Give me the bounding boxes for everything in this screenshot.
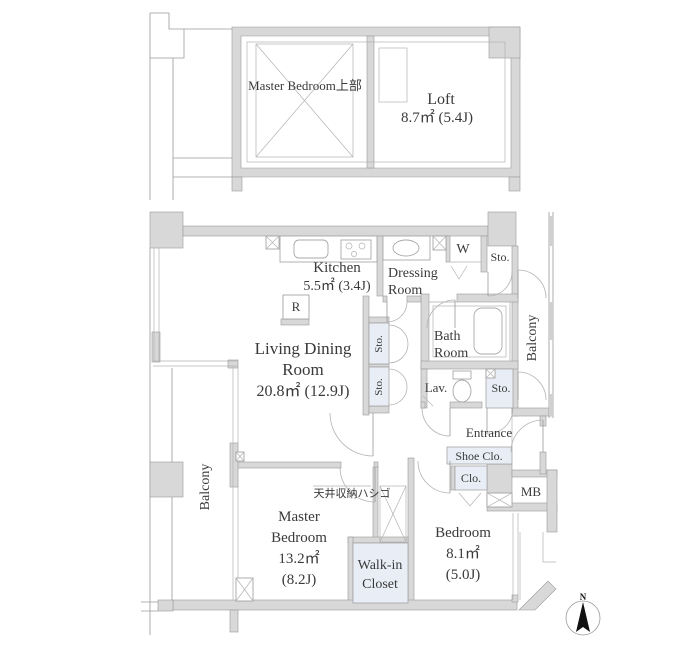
storage-label-2: Sto. (373, 378, 385, 396)
kitchen-sink (294, 240, 328, 258)
walk-in-closet (353, 543, 408, 603)
toilet (453, 380, 471, 402)
bedroom-area-label-1: 8.1㎡ (446, 545, 480, 562)
dressing-room-label-2: Room (388, 283, 422, 298)
bath-room-label-1: Bath (434, 329, 460, 344)
balcony-label-left: Balcony (198, 464, 213, 511)
bath-room-label-2: Room (434, 346, 468, 361)
wic-label-1: Walk-in (358, 558, 403, 573)
loft-label: Loft (427, 91, 455, 108)
master-area-label-1: 13.2㎡ (278, 550, 319, 567)
toilet-tank (453, 371, 471, 379)
wic-label-2: Closet (362, 577, 398, 592)
pipe-shaft-kitchen (266, 236, 279, 249)
washer-label: W (456, 242, 470, 257)
floor-plan-page: Master Bedroom上部 Loft 8.7㎡ (5.4J) (0, 0, 700, 650)
entrance-label: Entrance (466, 425, 512, 440)
pillar-master (236, 578, 253, 601)
closet-door-mark (459, 493, 481, 506)
dressing-room-label-1: Dressing (388, 266, 438, 281)
lavatory-label: Lav. (425, 380, 448, 395)
bathtub (474, 308, 502, 354)
wash-basin (393, 240, 419, 256)
pipe-shaft-balcony (236, 452, 244, 461)
loft-walls (232, 27, 520, 191)
kitchen-area-label: 5.5㎡ (3.4J) (303, 278, 371, 294)
balcony-label-right: Balcony (525, 315, 540, 362)
storage-label-topright: Sto. (490, 250, 509, 264)
loft-inner-outline (247, 42, 505, 162)
master-label-1: Master (278, 509, 320, 525)
storage-label-1: Sto. (373, 335, 385, 353)
living-label-1: Living Dining (255, 339, 352, 358)
loft-neighbor-lines (150, 13, 232, 200)
north-needle-icon (576, 602, 590, 632)
pipe-shaft-storage (486, 369, 495, 378)
closet-label: Clo. (461, 471, 481, 485)
ceiling-ladder-label: 天井収納ハシゴ (314, 486, 391, 500)
living-area-label: 20.8㎡ (12.9J) (257, 382, 350, 400)
storage-label-entrance: Sto. (491, 381, 510, 395)
master-label-2: Bedroom (271, 530, 327, 546)
bedroom-label: Bedroom (435, 525, 491, 541)
shaft-entrance (487, 493, 512, 507)
master-bedroom-above-label: Master Bedroom上部 (248, 78, 362, 93)
main-plan: Kitchen 5.5㎡ (3.4J) R Dressing Room W St… (141, 212, 600, 635)
refrigerator-label: R (292, 299, 301, 314)
floor-plan-svg: Master Bedroom上部 Loft 8.7㎡ (5.4J) (0, 0, 700, 650)
loft-area-label: 8.7㎡ (5.4J) (401, 109, 473, 126)
compass-rose: N (566, 592, 600, 635)
pipe-shaft-dressing (433, 236, 446, 250)
kitchen-label: Kitchen (313, 260, 361, 276)
loft-plan: Master Bedroom上部 Loft 8.7㎡ (5.4J) (150, 13, 520, 200)
washer-door-mark (451, 266, 467, 279)
compass-north-label: N (580, 592, 587, 602)
master-area-label-2: (8.2J) (282, 572, 317, 588)
bedroom-area-label-2: (5.0J) (446, 567, 481, 583)
shoe-closet-label: Shoe Clo. (455, 449, 502, 463)
open-to-below-cross (256, 44, 353, 157)
meter-box-label: MB (521, 484, 542, 499)
loft-ladder-hatch (379, 48, 407, 102)
living-label-2: Room (282, 360, 324, 379)
